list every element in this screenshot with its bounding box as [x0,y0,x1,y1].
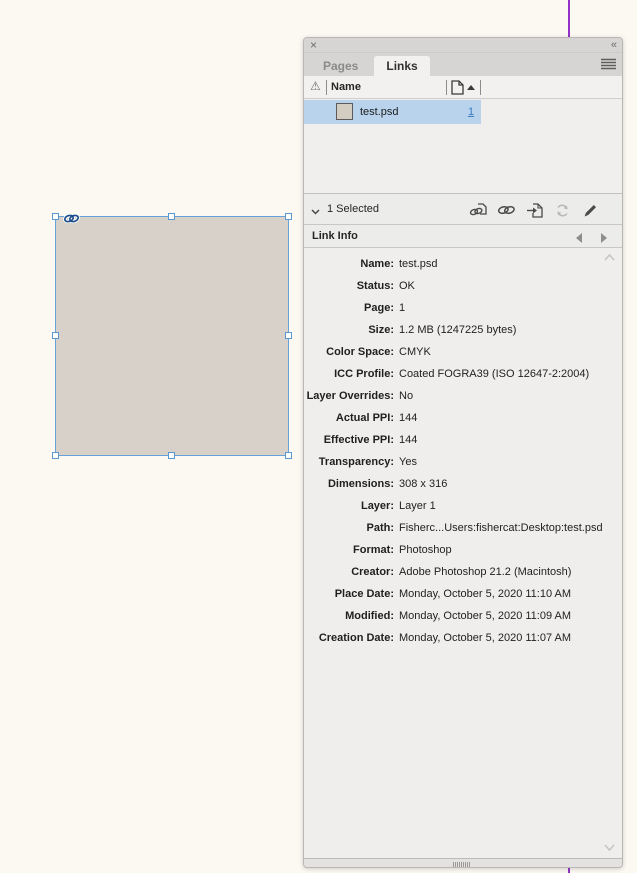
field-value: Adobe Photoshop 21.2 (Macintosh) [394,561,616,583]
field-value: Monday, October 5, 2020 11:07 AM [394,627,616,649]
info-row: Path:Fisherc...Users:fishercat:Desktop:t… [304,517,616,539]
info-row: Effective PPI:144 [304,429,616,451]
info-row: Creation Date:Monday, October 5, 2020 11… [304,627,616,649]
info-row: Dimensions:308 x 316 [304,473,616,495]
info-row: Place Date:Monday, October 5, 2020 11:10… [304,583,616,605]
info-row: Format:Photoshop [304,539,616,561]
tab-links[interactable]: Links [374,56,429,76]
links-panel: × « Pages Links ⚠ Name [303,37,623,868]
selection-handle-s[interactable] [168,452,175,459]
field-value: 1.2 MB (1247225 bytes) [394,319,616,341]
selection-handle-e[interactable] [285,332,292,339]
link-thumbnail [336,103,353,120]
field-label: Status: [304,275,394,297]
info-row: Creator:Adobe Photoshop 21.2 (Macintosh) [304,561,616,583]
tab-pages[interactable]: Pages [311,56,370,76]
link-info-title: Link Info [312,230,358,242]
selected-link-toolbar: 1 Selected [304,193,622,224]
field-value: Photoshop [394,539,616,561]
info-row: Layer Overrides:No [304,385,616,407]
field-value: 144 [394,407,616,429]
info-row: Color Space:CMYK [304,341,616,363]
chevron-down-icon[interactable] [311,206,320,218]
field-label: Name: [304,253,394,275]
link-filename: test.psd [360,106,399,118]
field-label: Creator: [304,561,394,583]
name-column-header[interactable]: Name [331,81,361,93]
field-label: Effective PPI: [304,429,394,451]
selection-handle-nw[interactable] [52,213,59,220]
update-link-icon-disabled[interactable] [552,200,572,220]
field-label: ICC Profile: [304,363,394,385]
field-label: Path: [304,517,394,539]
field-value: Monday, October 5, 2020 11:10 AM [394,583,616,605]
status-column-warning-icon[interactable]: ⚠ [310,79,321,93]
info-row: ICC Profile:Coated FOGRA39 (ISO 12647-2:… [304,363,616,385]
field-value: 308 x 316 [394,473,616,495]
selected-count-label: 1 Selected [327,203,379,215]
field-value: Fisherc...Users:fishercat:Desktop:test.p… [394,517,616,539]
panel-menu-icon[interactable] [601,58,616,73]
column-divider[interactable] [480,80,481,95]
selection-handle-n[interactable] [168,213,175,220]
info-row: Status:OK [304,275,616,297]
link-info-fields: Name:test.psd Status:OK Page:1 Size:1.2 … [304,248,622,858]
field-label: Transparency: [304,451,394,473]
field-label: Creation Date: [304,627,394,649]
sort-ascending-icon [467,85,475,90]
scroll-down-icon[interactable] [604,842,615,854]
link-page-number[interactable]: 1 [464,106,478,118]
field-label: Dimensions: [304,473,394,495]
selection-handle-sw[interactable] [52,452,59,459]
info-row: Modified:Monday, October 5, 2020 11:09 A… [304,605,616,627]
column-divider[interactable] [446,80,447,95]
close-icon[interactable]: × [310,40,317,50]
relink-from-cc-libraries-icon[interactable] [468,200,488,220]
field-value: No [394,385,616,407]
page-column-icon[interactable] [451,80,464,98]
info-row: Actual PPI:144 [304,407,616,429]
field-label: Page: [304,297,394,319]
field-value: CMYK [394,341,616,363]
placed-image-frame[interactable] [55,216,289,456]
selection-handle-se[interactable] [285,452,292,459]
field-value: Monday, October 5, 2020 11:09 AM [394,605,616,627]
info-row: Page:1 [304,297,616,319]
field-value: 1 [394,297,616,319]
field-label: Color Space: [304,341,394,363]
link-badge-icon [63,211,80,229]
go-to-link-icon[interactable] [524,200,544,220]
relink-icon[interactable] [496,200,516,220]
info-row: Transparency:Yes [304,451,616,473]
link-row-selected[interactable]: test.psd 1 [304,100,481,124]
field-value: Yes [394,451,616,473]
links-column-header: ⚠ Name [304,76,622,99]
field-value: test.psd [394,253,616,275]
panel-resize-bar [304,858,622,868]
selection-handle-ne[interactable] [285,213,292,220]
field-value: Layer 1 [394,495,616,517]
field-label: Modified: [304,605,394,627]
field-value: 144 [394,429,616,451]
collapse-panel-icon[interactable]: « [611,39,616,51]
links-list: test.psd 1 [304,99,622,193]
field-label: Layer: [304,495,394,517]
field-label: Place Date: [304,583,394,605]
next-link-icon[interactable] [601,233,607,243]
resize-gripper[interactable] [453,862,470,867]
field-label: Format: [304,539,394,561]
panel-tabbar: Pages Links [304,53,622,76]
column-divider[interactable] [326,80,327,95]
field-value: Coated FOGRA39 (ISO 12647-2:2004) [394,363,616,385]
selection-handle-w[interactable] [52,332,59,339]
field-label: Actual PPI: [304,407,394,429]
field-label: Layer Overrides: [304,385,394,407]
link-info-header: Link Info [304,224,622,248]
info-row: Layer:Layer 1 [304,495,616,517]
previous-link-icon[interactable] [576,233,582,243]
info-row: Size:1.2 MB (1247225 bytes) [304,319,616,341]
edit-original-icon[interactable] [580,200,600,220]
field-value: OK [394,275,616,297]
field-label: Size: [304,319,394,341]
info-row: Name:test.psd [304,253,616,275]
panel-titlebar: × « [304,38,622,53]
scroll-up-icon[interactable] [604,252,615,264]
